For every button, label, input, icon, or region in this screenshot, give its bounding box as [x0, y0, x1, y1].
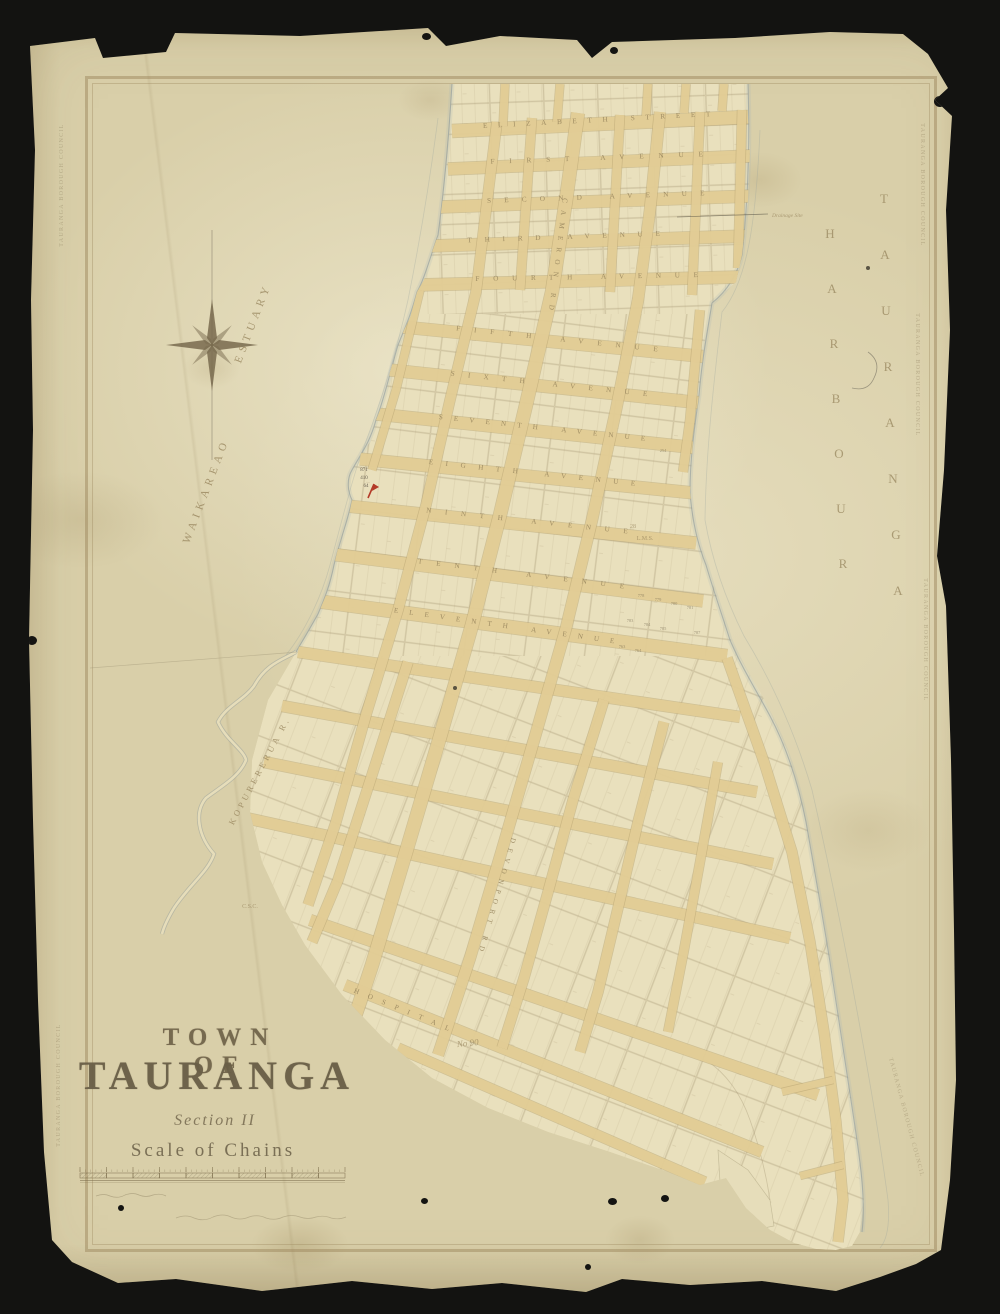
street-neck-stub-3	[646, 84, 648, 116]
ink-spot	[453, 686, 457, 690]
lot-number: 779	[655, 597, 662, 602]
lot-number: 787	[694, 630, 701, 635]
annotation-text: L.M.S.	[637, 536, 654, 542]
svg-text:A: A	[885, 415, 895, 430]
margin-stamp: TAURANGA BOROUGH COUNCIL	[919, 123, 925, 246]
margin-stamp: TAURANGA BOROUGH COUNCIL	[59, 123, 65, 246]
annotation-text: Drainage Site	[771, 213, 803, 219]
lot-number: 785	[660, 626, 667, 631]
paper-hole	[27, 636, 37, 645]
margin-stamp: TAURANGA BOROUGH COUNCIL	[922, 578, 928, 701]
map-sheet: ELIZABETH STREETFIRST AVENUESECOND AVENU…	[0, 0, 1000, 1314]
photo-backdrop: { "colors": { "backdrop": "#131311", "pa…	[0, 0, 1000, 1314]
paper-hole	[118, 1205, 124, 1211]
lot-number: 764	[635, 648, 642, 653]
svg-text:U: U	[881, 303, 891, 318]
paper-hole	[608, 1198, 617, 1205]
ink-spot	[866, 266, 870, 270]
margin-stamp: TAURANGA BOROUGH COUNCIL	[887, 1057, 925, 1178]
lot-number: 781	[687, 605, 694, 610]
street-neck-stub-5	[722, 84, 724, 111]
svg-text:N: N	[888, 471, 898, 486]
svg-text:A: A	[893, 583, 903, 598]
survey-line	[90, 652, 298, 668]
lot-number: 254	[660, 448, 667, 453]
street-neck-cross-4	[738, 110, 742, 268]
lot-number: 778	[638, 593, 645, 598]
annotation-text: 28	[630, 524, 636, 530]
harbour-label-word1: TAURANGA	[880, 191, 903, 598]
fine-print-line	[96, 1194, 166, 1198]
annotation-text: 871	[360, 468, 368, 473]
street-neck-stub-2	[557, 84, 560, 122]
lot-number: 763	[619, 644, 626, 649]
svg-text:B: B	[832, 391, 841, 406]
svg-text:A: A	[880, 247, 890, 262]
annotation-text: 410	[360, 476, 368, 481]
title-section: Section II	[150, 1112, 280, 1130]
paper-hole	[934, 96, 946, 107]
title-scale-label: Scale of Chains	[118, 1140, 308, 1162]
title-town-name: TAURANGA	[62, 1052, 372, 1099]
lot-number: 784	[644, 622, 651, 627]
paper-hole	[421, 1198, 428, 1204]
lot-number: 780	[671, 601, 678, 606]
svg-text:G: G	[891, 527, 900, 542]
annotation-text: 64	[364, 484, 370, 489]
lot-number: 783	[627, 618, 634, 623]
harbour-label-word2: HARBOUR	[825, 226, 847, 571]
estuary-label-word2: ESTUARY	[232, 281, 274, 365]
svg-text:H: H	[825, 226, 834, 241]
svg-text:O: O	[834, 446, 843, 461]
estuary-label-word1: WAIKAREAO	[181, 437, 232, 545]
margin-stamp: TAURANGA BOROUGH COUNCIL	[914, 313, 920, 436]
paper-hole	[661, 1195, 669, 1202]
street-neck-stub-1	[503, 84, 505, 126]
svg-text:R: R	[830, 336, 839, 351]
paper-hole	[585, 1264, 591, 1270]
svg-text:R: R	[884, 359, 893, 374]
paper-hole	[610, 47, 618, 54]
svg-text:U: U	[836, 501, 846, 516]
street-neck-stub-4	[684, 84, 686, 113]
svg-text:T: T	[880, 191, 888, 206]
paper-hole	[422, 33, 431, 40]
fine-print-line	[176, 1215, 346, 1220]
svg-text:A: A	[827, 281, 837, 296]
svg-text:R: R	[839, 556, 848, 571]
annotation-text: C.S.C.	[242, 904, 258, 910]
pencil-scribble	[852, 352, 877, 389]
scale-bar	[80, 1167, 345, 1183]
